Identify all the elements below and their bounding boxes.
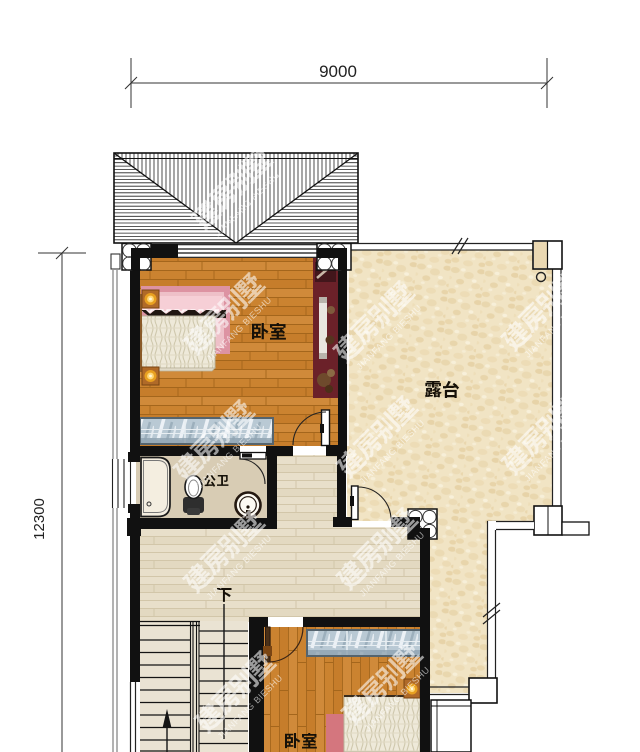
svg-text:12300: 12300 — [31, 498, 48, 540]
svg-text:9000: 9000 — [319, 62, 357, 81]
